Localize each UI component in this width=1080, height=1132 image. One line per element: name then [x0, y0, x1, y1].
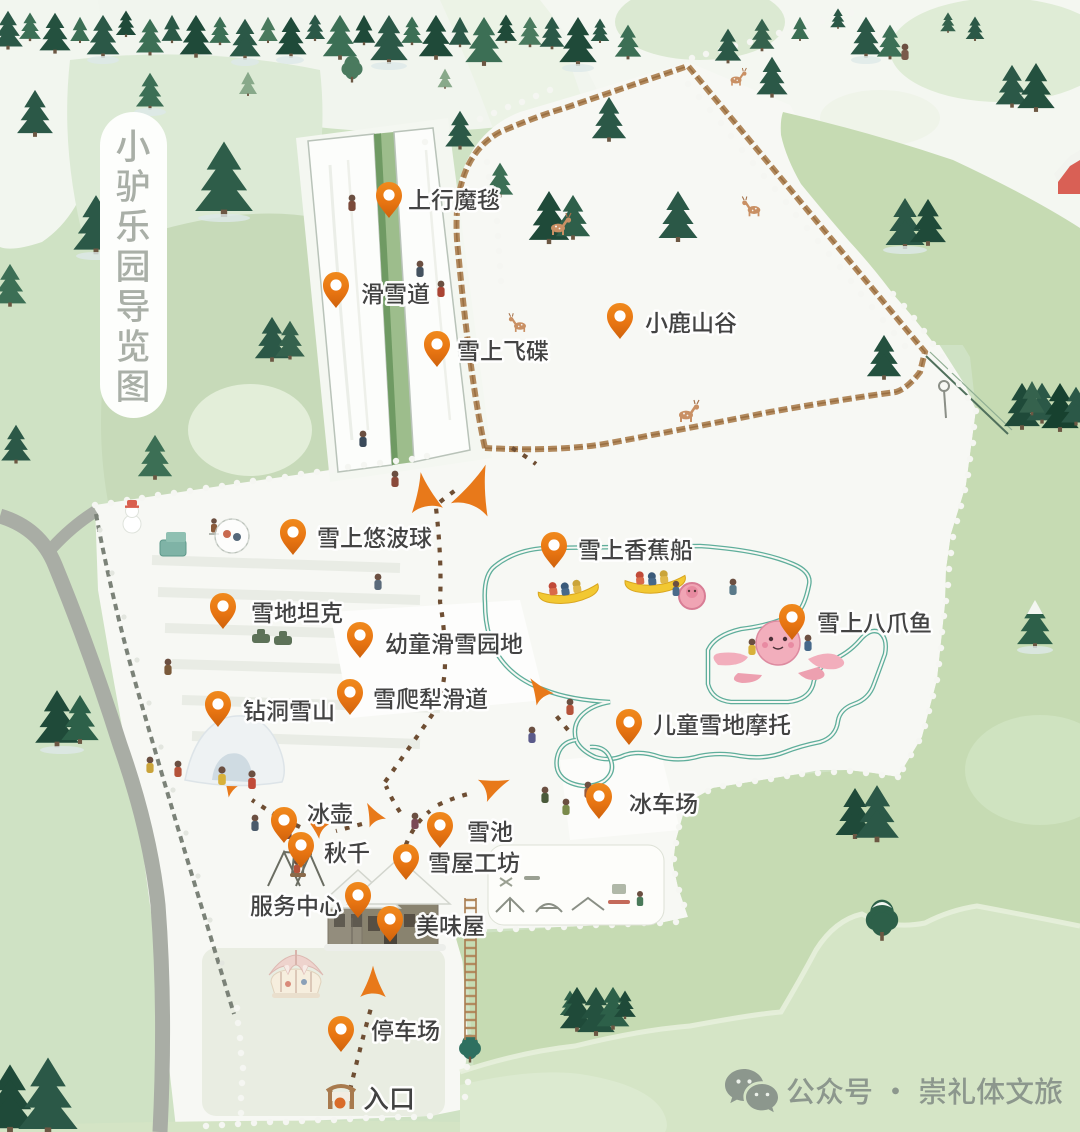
svg-text:上行魔毯: 上行魔毯	[408, 181, 500, 215]
svg-text:美味屋: 美味屋	[416, 907, 485, 941]
svg-text:雪上八爪鱼: 雪上八爪鱼	[817, 604, 932, 638]
svg-text:雪上悠波球: 雪上悠波球	[317, 519, 432, 553]
svg-text:公众号 · 崇礼体文旅: 公众号 · 崇礼体文旅	[786, 1069, 1063, 1111]
svg-text:雪屋工坊: 雪屋工坊	[428, 844, 520, 878]
svg-text:雪地坦克: 雪地坦克	[251, 594, 343, 628]
svg-text:滑雪道: 滑雪道	[361, 275, 430, 309]
svg-text:停车场: 停车场	[371, 1012, 440, 1046]
svg-text:图: 图	[115, 359, 150, 410]
svg-text:冰车场: 冰车场	[629, 785, 698, 819]
svg-text:雪上香蕉船: 雪上香蕉船	[578, 531, 693, 565]
svg-text:冰壶: 冰壶	[307, 795, 353, 829]
svg-text:钻洞雪山: 钻洞雪山	[243, 692, 335, 726]
svg-text:秋千: 秋千	[324, 834, 370, 868]
svg-text:雪池: 雪池	[467, 813, 513, 847]
svg-text:服务中心: 服务中心	[250, 887, 342, 921]
svg-text:儿童雪地摩托: 儿童雪地摩托	[653, 706, 791, 740]
svg-text:小鹿山谷: 小鹿山谷	[645, 304, 737, 338]
svg-text:幼童滑雪园地: 幼童滑雪园地	[385, 625, 523, 659]
svg-text:入口: 入口	[363, 1079, 415, 1116]
svg-text:雪上飞碟: 雪上飞碟	[457, 332, 549, 366]
svg-text:雪爬犁滑道: 雪爬犁滑道	[373, 680, 488, 714]
